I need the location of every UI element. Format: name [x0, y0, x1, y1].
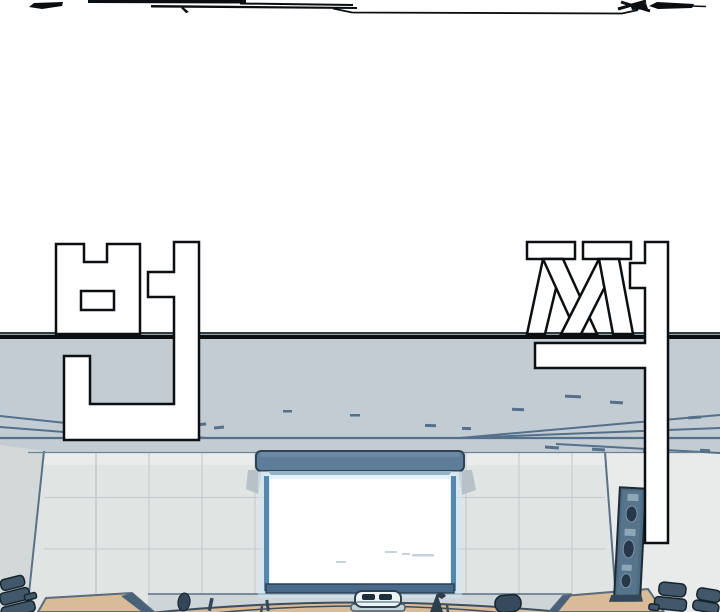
mini-projector-vent-1 — [362, 594, 375, 600]
screen-rail-right — [451, 476, 456, 591]
scribble-cluster-right — [618, 1, 706, 11]
front-desk-tick-2 — [447, 605, 448, 612]
mini-projector-body — [355, 591, 401, 607]
front-desk-tick-1 — [261, 606, 262, 612]
comic-panel-page — [0, 0, 720, 612]
speaker-driver-2 — [623, 540, 635, 559]
panel-border — [0, 335, 720, 339]
scribble-dash-left — [29, 2, 63, 9]
sfx-jjeok-bar1 — [527, 242, 575, 259]
speaker-slot-1 — [627, 494, 638, 502]
sfx-jjeok-bar2 — [583, 242, 631, 259]
screen-housing-lip — [260, 452, 460, 457]
mini-projector-vent-2 — [379, 594, 392, 600]
speaker-driver-1 — [626, 506, 638, 523]
head-silhouette-2 — [494, 594, 521, 612]
panel-artwork — [0, 0, 720, 612]
motion-scribbles — [29, 0, 706, 14]
sfx-beon-bieup — [56, 244, 140, 334]
sfx-jjeok-leg2b — [599, 259, 633, 334]
screen-rail-left — [264, 476, 269, 591]
projection-screen-assembly — [246, 451, 476, 598]
speaker-slot-2 — [624, 529, 635, 537]
scribble-thick-line — [88, 0, 246, 4]
mini-projector — [351, 591, 405, 611]
speaker-driver-3 — [621, 573, 632, 588]
screen-surface — [270, 479, 450, 590]
speaker-slot-3 — [622, 564, 632, 571]
